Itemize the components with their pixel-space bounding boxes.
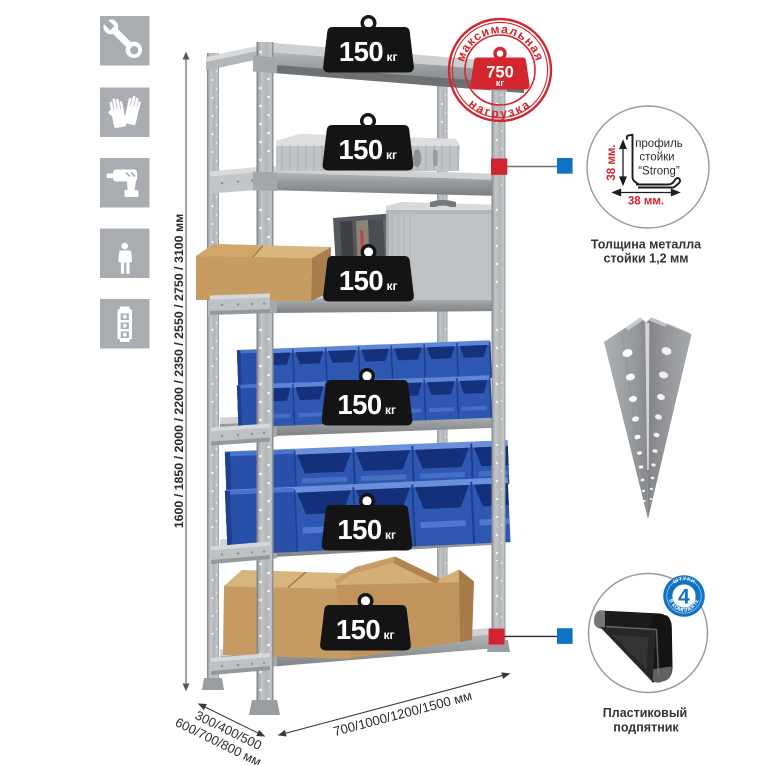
svg-text:“Strong”: “Strong” <box>638 166 680 178</box>
svg-text:кг: кг <box>496 78 505 88</box>
svg-text:Толщина металла: Толщина металла <box>591 238 702 252</box>
svg-text:профиль: профиль <box>635 138 683 150</box>
svg-text:1600 / 1850 / 2000 / 2200 / 23: 1600 / 1850 / 2000 / 2200 / 2350 / 2550 … <box>172 214 186 529</box>
svg-text:стойки: стойки <box>639 152 674 164</box>
svg-text:стойки 1,2 мм: стойки 1,2 мм <box>604 252 689 266</box>
svg-text:38 мм.: 38 мм. <box>628 196 664 208</box>
svg-text:38 мм.: 38 мм. <box>606 144 618 180</box>
svg-text:4: 4 <box>678 586 690 609</box>
svg-text:Пластиковый: Пластиковый <box>603 706 687 720</box>
svg-text:подпятник: подпятник <box>613 721 679 735</box>
